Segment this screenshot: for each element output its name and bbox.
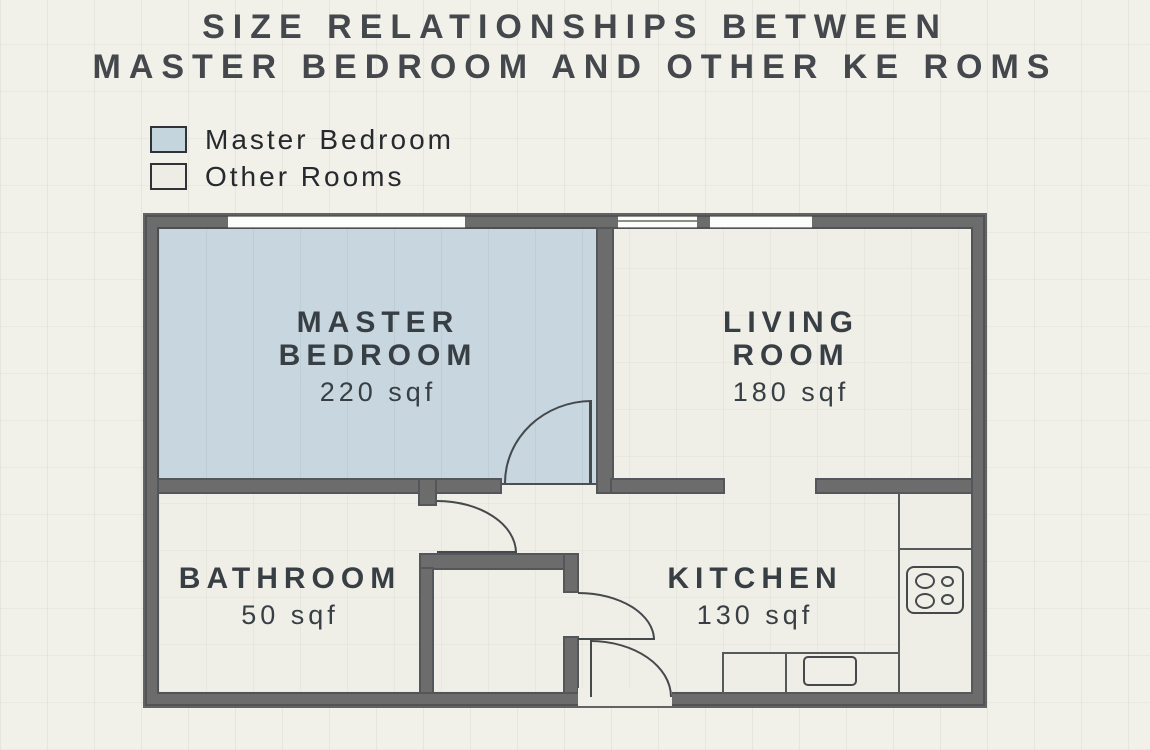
- wall-bedroom-living-divider: [596, 227, 614, 494]
- wall-horizontal-middle: [610, 478, 725, 494]
- legend-swatch-master-bedroom: [150, 126, 187, 153]
- room-area: 50 sqf: [179, 598, 401, 632]
- room-name: ROOM: [723, 339, 859, 372]
- room-area: 180 sqf: [723, 375, 859, 409]
- legend-label: Master Bedroom: [205, 124, 454, 156]
- page-title-line-1: SIZE RELATIONSHIPS BETWEEN: [0, 8, 1150, 47]
- room-label-living-room: LIVING ROOM 180 sqf: [723, 306, 859, 409]
- stove-burner-large: [915, 593, 935, 609]
- stove-burner-small: [941, 594, 954, 605]
- wall-door-jamb: [418, 478, 437, 506]
- wall-closet-right-upper: [563, 553, 579, 593]
- room-name: LIVING: [723, 306, 859, 339]
- stove-burner-small: [941, 576, 954, 587]
- room-label-kitchen: KITCHEN 130 sqf: [667, 562, 842, 632]
- legend: Master Bedroom Other Rooms: [150, 121, 454, 195]
- wall-horizontal-left: [157, 478, 502, 494]
- stove-burner-large: [915, 573, 935, 589]
- stove-icon: [906, 566, 964, 614]
- counter-divider: [785, 654, 787, 692]
- room-name: KITCHEN: [667, 562, 842, 595]
- sink-icon: [803, 656, 857, 686]
- floor-plan: MASTER BEDROOM 220 sqf LIVING ROOM 180 s…: [145, 215, 985, 706]
- wall-closet-top: [419, 553, 579, 570]
- page-title-line-2: MASTER BEDROOM AND OTHER KE ROMS: [0, 48, 1150, 87]
- room-name: BATHROOM: [179, 562, 401, 595]
- floor-plan-infographic: SIZE RELATIONSHIPS BETWEEN MASTER BEDROO…: [0, 0, 1150, 750]
- room-area: 220 sqf: [279, 375, 478, 409]
- window-living-room-1: [618, 216, 697, 228]
- legend-item-other-rooms: Other Rooms: [150, 158, 454, 195]
- legend-swatch-other-rooms: [150, 163, 187, 190]
- legend-label: Other Rooms: [205, 161, 405, 193]
- room-label-master-bedroom: MASTER BEDROOM 220 sqf: [279, 306, 478, 409]
- room-label-bathroom: BATHROOM 50 sqf: [179, 562, 401, 632]
- wall-closet-right-lower: [563, 636, 579, 694]
- window-mullion: [618, 220, 697, 222]
- room-name: BEDROOM: [279, 339, 478, 372]
- counter-divider: [900, 548, 971, 550]
- wall-closet-left: [419, 567, 434, 694]
- window-living-room-2: [710, 216, 812, 228]
- room-area: 130 sqf: [667, 598, 842, 632]
- window-master-bedroom: [228, 216, 465, 228]
- room-name: MASTER: [279, 306, 478, 339]
- legend-item-master-bedroom: Master Bedroom: [150, 121, 454, 158]
